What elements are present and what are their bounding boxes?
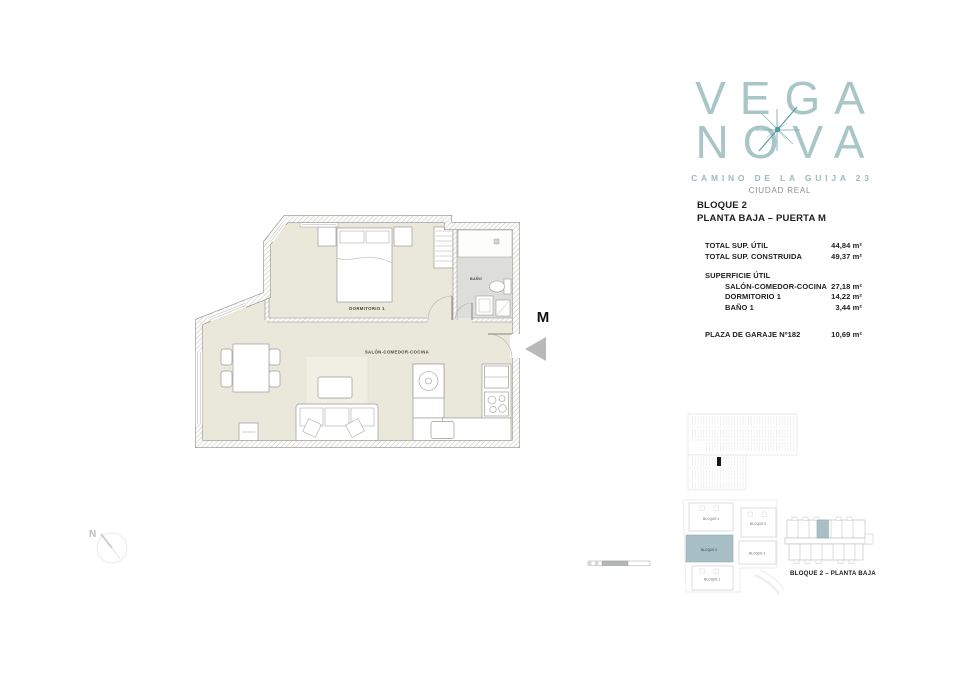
highlighted-parking-space — [717, 457, 721, 466]
site-block-label: BLOQUE 5 — [750, 522, 767, 526]
table-row: BAÑO 1 3,44 m² — [705, 303, 862, 314]
row-value: 49,37 m² — [831, 252, 862, 263]
row-value: 27,18 m² — [831, 282, 862, 293]
site-block-label: BLOQUE 1 — [704, 578, 721, 582]
table-section-row: SUPERFICIE ÚTIL — [705, 271, 862, 282]
brand-logo: VEGA NOVA CAMINO DE LA GUIJA 23 CIUDAD R… — [655, 70, 905, 195]
row-label: TOTAL SUP. CONSTRUIDA — [705, 252, 802, 263]
brand-name-line2: NOVA — [655, 120, 905, 164]
apartment-floorplan: DORMITORIO 1 SALÓN-COMEDOR-COCINA BAÑO M — [180, 200, 560, 460]
unit-floor-door-title: PLANTA BAJA – PUERTA M — [697, 213, 826, 226]
unit-header: BLOQUE 2 PLANTA BAJA – PUERTA M — [697, 200, 826, 225]
table-row: TOTAL SUP. CONSTRUIDA 49,37 m² — [705, 252, 862, 263]
key-plan-caption: BLOQUE 2 – PLANTA BAJA — [790, 570, 876, 577]
entrance-arrow-icon — [525, 337, 546, 361]
bathroom-label: BAÑO — [470, 276, 482, 281]
site-block-label: BLOQUE 3 — [749, 552, 766, 556]
highlighted-unit — [817, 520, 829, 538]
bathroom-area — [458, 230, 512, 318]
site-block-label: BLOQUE 4 — [703, 517, 720, 521]
compass-north-label: N — [89, 529, 96, 540]
site-key-plan: BLOQUE 4 BLOQUE 5 BLOQUE 2 BLOQUE 3 BLOQ… — [680, 494, 784, 596]
row-label: SALÓN-COMEDOR-COCINA — [725, 282, 827, 293]
site-block-label-highlighted: BLOQUE 2 — [701, 548, 718, 552]
row-label: PLAZA DE GARAJE Nº182 — [705, 330, 800, 341]
brand-city: CIUDAD REAL — [655, 186, 905, 195]
compass-needle — [101, 534, 112, 548]
brand-name-line1: VEGA — [655, 76, 905, 120]
living-label: SALÓN-COMEDOR-COCINA — [365, 350, 429, 355]
block-floor-key-plan: BLOQUE 2 – PLANTA BAJA — [783, 500, 910, 585]
bedroom-label: DORMITORIO 1 — [349, 306, 385, 311]
row-label: TOTAL SUP. ÚTIL — [705, 241, 768, 252]
plan-sheet: DORMITORIO 1 SALÓN-COMEDOR-COCINA BAÑO M… — [0, 0, 960, 678]
row-value: 3,44 m² — [835, 303, 862, 314]
table-row: TOTAL SUP. ÚTIL 44,84 m² — [705, 241, 862, 252]
garage-key-plan — [683, 410, 803, 496]
row-label: BAÑO 1 — [725, 303, 754, 314]
unit-block-title: BLOQUE 2 — [697, 200, 826, 213]
row-label: DORMITORIO 1 — [725, 292, 781, 303]
table-row: PLAZA DE GARAJE Nº182 10,69 m² — [705, 330, 862, 341]
compass-rose: N — [75, 508, 145, 578]
table-row: SALÓN-COMEDOR-COCINA 27,18 m² — [705, 282, 862, 293]
row-value: 44,84 m² — [831, 241, 862, 252]
row-label: SUPERFICIE ÚTIL — [705, 271, 770, 282]
scale-bar — [585, 556, 657, 570]
row-value: 14,22 m² — [831, 292, 862, 303]
door-letter-label: M — [537, 309, 550, 326]
row-value: 10,69 m² — [831, 330, 862, 341]
surface-table: TOTAL SUP. ÚTIL 44,84 m² TOTAL SUP. CONS… — [705, 241, 862, 341]
brand-address: CAMINO DE LA GUIJA 23 — [655, 173, 905, 183]
table-row: DORMITORIO 1 14,22 m² — [705, 292, 862, 303]
